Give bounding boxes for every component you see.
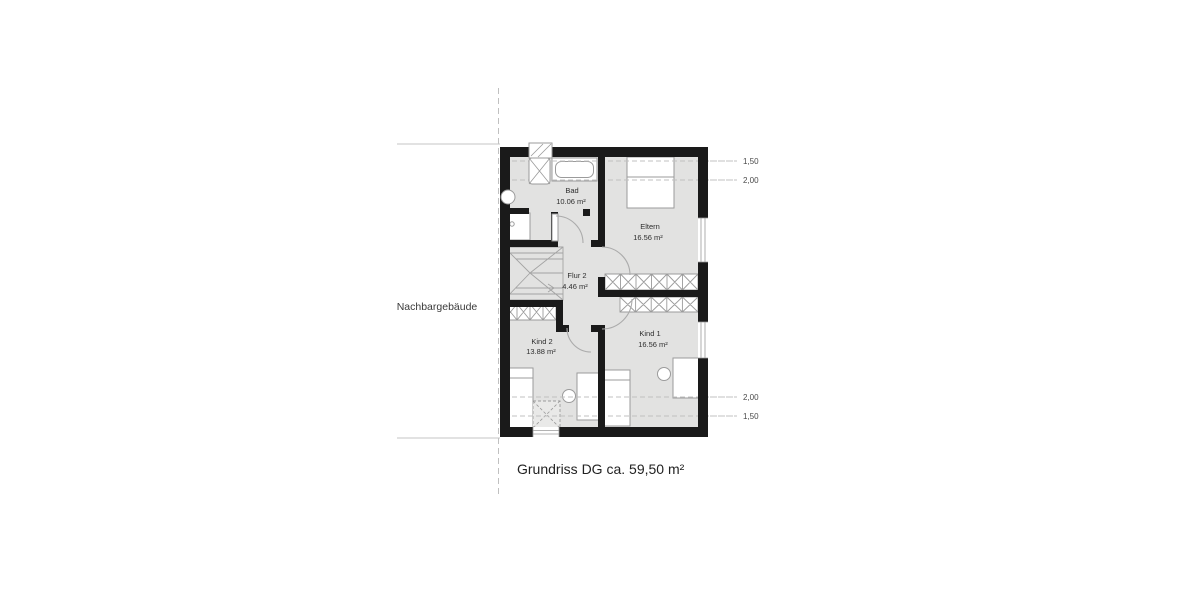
window-kind1-opening: [698, 322, 708, 358]
child1-bed: [603, 370, 630, 426]
chimney-shaft: [529, 143, 552, 158]
room-area-kind2: 13.88 m²: [526, 347, 556, 356]
room-label-flur: Flur 2: [567, 271, 586, 280]
neighbor-building-label: Nachbargebäude: [397, 301, 478, 313]
room-label-kind2: Kind 2: [531, 337, 552, 346]
window-kind2-opening: [533, 427, 559, 437]
room-label-bad: Bad: [565, 186, 578, 195]
wall-bad-south: [500, 240, 558, 247]
wall-bottom-left: [500, 427, 533, 437]
child1-chair: [658, 368, 671, 381]
wall-shower-top: [500, 208, 529, 214]
height-marker-stubs: [710, 161, 737, 416]
height-marker-150-bottom: 1,50: [743, 412, 759, 421]
window-eltern-opening: [698, 218, 708, 262]
wall-bad-eltern: [598, 157, 605, 247]
child1-desk: [673, 358, 699, 398]
wall-right-lower: [698, 358, 708, 437]
room-area-kind1: 16.56 m²: [638, 340, 668, 349]
window-kind2: [533, 427, 559, 437]
sink: [501, 190, 515, 204]
bad-door-leaf: [552, 214, 558, 241]
parents-bed: [627, 157, 674, 208]
wall-stair-south: [500, 300, 563, 307]
toilet: [529, 158, 550, 184]
room-label-kind1: Kind 1: [639, 329, 660, 338]
child2-chair: [563, 390, 576, 403]
wall-right-upper: [698, 147, 708, 218]
wall-kind2-kind1: [598, 325, 605, 427]
wall-top-right: [552, 147, 708, 157]
wardrobe-eltern: [605, 274, 698, 290]
roof-window: [533, 401, 560, 428]
room-area-eltern: 16.56 m²: [633, 233, 663, 242]
room-area-flur: 4.46 m²: [562, 282, 588, 291]
plan-title: Grundriss DG ca. 59,50 m²: [517, 461, 685, 477]
wall-bottom-right: [559, 427, 708, 437]
chimney-shaft-box: [529, 143, 552, 158]
wall-right-middle: [698, 262, 708, 322]
wall-eltern-kind1: [598, 290, 698, 297]
window-eltern: [698, 218, 708, 262]
height-marker-200-bottom: 2,00: [743, 393, 759, 402]
floor-plan-page: Bad 10.06 m² Eltern 16.56 m² Flur 2 4.46…: [0, 0, 1200, 600]
room-area-bad: 10.06 m²: [556, 197, 586, 206]
floor-plan-canvas: Bad 10.06 m² Eltern 16.56 m² Flur 2 4.46…: [0, 0, 1200, 600]
room-label-eltern: Eltern: [640, 222, 660, 231]
wall-bad-door-jamb: [583, 209, 590, 216]
height-marker-200-top: 2,00: [743, 176, 759, 185]
window-kind1: [698, 322, 708, 358]
height-marker-150-top: 1,50: [743, 157, 759, 166]
reference-lines: [397, 88, 500, 498]
